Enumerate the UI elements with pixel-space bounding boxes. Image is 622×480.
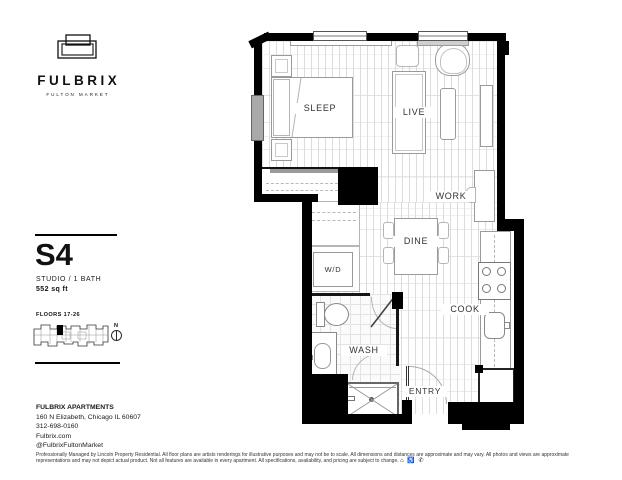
dining-chair bbox=[438, 222, 449, 239]
wall-right-notch bbox=[505, 41, 509, 55]
contact-address: 160 N Elizabeth, Chicago IL 60607 bbox=[36, 413, 141, 423]
entry-door-leaf bbox=[406, 366, 409, 404]
kitchen-sink bbox=[484, 312, 505, 339]
wall-right-lower bbox=[514, 231, 524, 404]
counter-center-line bbox=[494, 235, 495, 367]
shower-control bbox=[347, 396, 355, 401]
brand-logo-icon bbox=[53, 34, 101, 61]
side-table bbox=[396, 45, 419, 67]
building-keyplan bbox=[32, 320, 110, 350]
divider-top bbox=[35, 234, 117, 236]
room-label-wd: W/D bbox=[317, 264, 349, 275]
wall-entry-pier bbox=[402, 400, 412, 416]
stove-burner bbox=[482, 267, 491, 276]
room-label-live: LIVE bbox=[395, 107, 433, 118]
unit-location-marker bbox=[57, 325, 63, 335]
contact-website: Fulbrix.com bbox=[36, 432, 141, 442]
room-label-dine: DINE bbox=[393, 236, 439, 247]
window-top-2 bbox=[418, 31, 468, 41]
wall-step-left bbox=[254, 194, 318, 202]
unit-code: S4 bbox=[35, 239, 73, 271]
disclaimer: Professionally Managed by Lincoln Proper… bbox=[36, 452, 598, 465]
stove-burner bbox=[497, 284, 506, 293]
floorplan-flyer: FULBRIX FULTON MARKET S4 STUDIO / 1 BATH… bbox=[0, 0, 622, 480]
brand-tagline: FULTON MARKET bbox=[28, 92, 126, 97]
room-label-entry: ENTRY bbox=[403, 386, 447, 397]
dining-chair bbox=[438, 247, 449, 264]
wall-bottom-bump bbox=[462, 424, 510, 430]
linen-closet bbox=[308, 201, 360, 246]
bed-pillows bbox=[273, 79, 290, 136]
unit-type: STUDIO / 1 BATH bbox=[36, 276, 101, 283]
closet-rod-line bbox=[266, 190, 338, 191]
room-label-wash: WASH bbox=[341, 345, 387, 356]
wall-bath-top bbox=[312, 293, 370, 296]
window-top-1 bbox=[313, 31, 367, 41]
room-label-work: WORK bbox=[428, 191, 474, 202]
window-sill-ledge bbox=[417, 41, 469, 46]
room-label-cook: COOK bbox=[441, 304, 489, 315]
kitchen-counter bbox=[480, 231, 511, 371]
disclaimer-text: Professionally Managed by Lincoln Proper… bbox=[36, 452, 569, 464]
housing-accessibility-icons: ⌂ ♿ ✆ bbox=[400, 458, 424, 464]
contact-phone: 312-698-0160 bbox=[36, 422, 141, 432]
wall-bath-corner-stub bbox=[392, 292, 403, 309]
room-label-sleep: SLEEP bbox=[294, 103, 346, 114]
divider-bottom bbox=[35, 362, 120, 364]
brand-name: FULBRIX bbox=[28, 73, 126, 88]
window-left bbox=[251, 95, 264, 141]
vanity-sink bbox=[314, 343, 331, 369]
tv-console bbox=[480, 85, 493, 147]
work-desk bbox=[474, 170, 495, 222]
dining-chair bbox=[383, 247, 394, 264]
wall-bath-corner-block bbox=[302, 374, 348, 424]
toilet-bowl bbox=[324, 303, 349, 326]
closet-rod-line bbox=[266, 183, 338, 184]
north-arrow-needle bbox=[116, 331, 117, 340]
unit-area: 552 sq ft bbox=[36, 286, 68, 293]
wall-closet-block bbox=[338, 167, 378, 205]
lounge-chair bbox=[435, 42, 470, 76]
fridge-wall-stub bbox=[475, 365, 483, 373]
brand-block: FULBRIX FULTON MARKET bbox=[28, 34, 126, 97]
nightstand bbox=[271, 55, 292, 77]
window-sill-ledge bbox=[290, 41, 392, 46]
shower-curb-line bbox=[349, 387, 396, 388]
kitchen-faucet bbox=[504, 322, 510, 329]
refrigerator bbox=[478, 368, 515, 405]
contact-name: FULBRIX APARTMENTS bbox=[36, 403, 141, 413]
wall-bottom-right bbox=[448, 402, 524, 424]
closet-sliding-door bbox=[270, 169, 338, 173]
floors-label: FLOORS 17-26 bbox=[36, 312, 80, 318]
linen-shelf-line bbox=[312, 220, 356, 221]
stove-burner bbox=[497, 267, 506, 276]
linen-shelf-line bbox=[312, 212, 356, 213]
coffee-table bbox=[440, 88, 456, 140]
wall-top bbox=[264, 33, 506, 41]
wall-step-right bbox=[497, 219, 524, 231]
stove-burner bbox=[482, 284, 491, 293]
washer-dryer: W/D bbox=[313, 252, 353, 287]
north-label: N bbox=[108, 323, 124, 329]
wall-right-upper bbox=[497, 33, 505, 227]
contact-social: @FulbrixFultonMarket bbox=[36, 441, 141, 451]
contact-block: FULBRIX APARTMENTS 160 N Elizabeth, Chic… bbox=[36, 403, 141, 451]
nightstand bbox=[271, 139, 292, 161]
shower-drain bbox=[369, 397, 374, 402]
